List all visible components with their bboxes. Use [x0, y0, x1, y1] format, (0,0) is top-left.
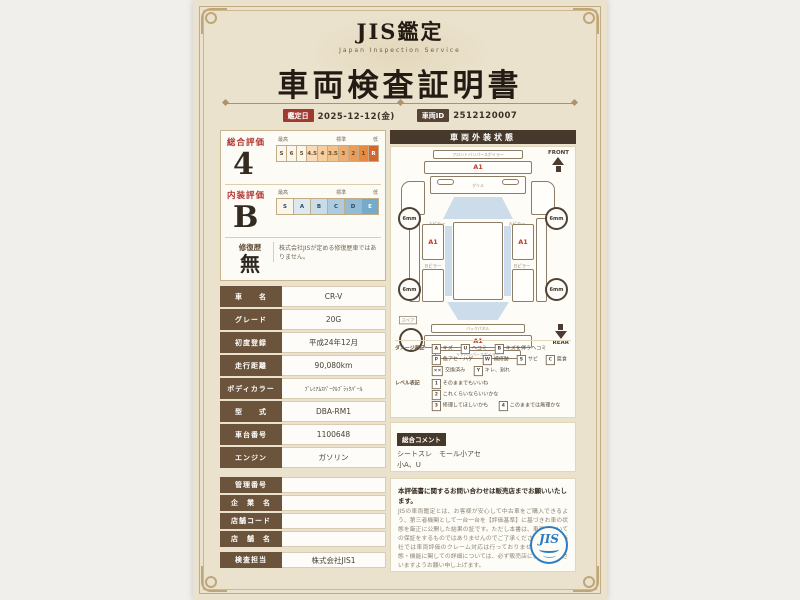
front-arrow: FRONT — [548, 150, 569, 172]
vehicle-id: 車両ID 2512120007 — [417, 109, 518, 122]
table-row: ボディカラーﾌﾟﾚﾐｱﾑｽﾊﾟｰｸﾙﾌﾞﾗｯｸﾊﾟｰﾙ — [220, 378, 386, 399]
date-label-chip: 鑑定日 — [283, 109, 314, 122]
corner-ornament — [573, 566, 599, 592]
left-door-glass — [445, 226, 452, 296]
left-front-door: A1 — [422, 224, 444, 260]
spare-tire-label: スペア — [399, 316, 417, 324]
left-rear-wheel: 6mm — [398, 278, 421, 301]
right-door-glass — [504, 226, 511, 296]
meta-badges: 鑑定日 2025-12-12(金) 車両ID 2512120007 — [193, 109, 607, 122]
scale-cell: B — [310, 198, 328, 215]
right-rear-wheel: 6mm — [545, 278, 568, 301]
damage-legend-label: ダメージ表記 — [395, 344, 426, 374]
right-front-wheel: 6mm — [545, 207, 568, 230]
overall-comment-card: 総合コメント シートスレ モール小アセ 小A、U — [390, 422, 576, 472]
damage-mark: A1 — [473, 164, 483, 171]
table-row: 走行距離90,080km — [220, 355, 386, 376]
exterior-panel-title: 車両外装状態 — [390, 130, 576, 144]
certificate: JIS鑑定 Japan Inspection Service 車両検査証明書 鑑… — [193, 0, 607, 600]
right-front-door: A1 — [512, 224, 534, 260]
roof — [453, 222, 503, 300]
scale-cell: D — [344, 198, 362, 215]
car-diagram: FRONT REAR フロントバンパースポイラー A1 グリル Aピラー Aピラ… — [397, 150, 569, 362]
interior-rating: 内装評価 B 最高 標準 低 S A B C D E — [227, 189, 379, 233]
dealer-info-table: 管理番号 企 業 名 店舗コード 店 舗 名 検査担当株式会社JIS1 — [220, 477, 386, 570]
table-row: 車 名CR-V — [220, 286, 386, 307]
brand-logo: JIS鑑定 — [193, 16, 607, 46]
repair-history-note: 株式会社JISが定める修復歴車ではありません。 — [273, 242, 379, 262]
marker-std: 標準 — [336, 189, 346, 196]
certificate-header: JIS鑑定 Japan Inspection Service 車両検査証明書 — [193, 16, 607, 105]
brand-subtitle: Japan Inspection Service — [193, 47, 607, 54]
interior-rating-value: B — [233, 203, 277, 233]
table-row: 企 業 名 — [220, 495, 386, 511]
right-headlight — [502, 179, 519, 185]
front-bumper: A1 — [424, 161, 532, 174]
back-panel: バックパネル — [431, 324, 525, 333]
interior-rating-scale: S A B C D E — [277, 198, 379, 215]
rear-window — [447, 302, 509, 320]
overall-rating-value: 4 — [233, 150, 277, 180]
damage-mark: A1 — [518, 239, 528, 246]
marker-std: 標準 — [336, 136, 346, 143]
left-headlight — [437, 179, 454, 185]
overall-rating-scale: S 6 5 4.5 4 3.5 3 2 1 R — [277, 145, 379, 162]
notice-title: 本評価書に関するお問い合わせは販売店までお願いいたします。 — [398, 485, 568, 505]
table-row: 車台番号1100648 — [220, 424, 386, 445]
marker-high: 最高 — [278, 189, 288, 196]
marker-low: 低 — [373, 189, 378, 196]
ratings-card: 総合評価 4 最高 標準 低 S 6 5 4.5 4 3.5 3 2 — [220, 130, 386, 281]
damage-mark: A1 — [428, 239, 438, 246]
table-row: 店舗コード — [220, 513, 386, 529]
notice-card: 本評価書に関するお問い合わせは販売店までお願いいたします。 JISの車両鑑定とは… — [390, 478, 576, 572]
right-rear-door — [512, 269, 534, 302]
front-spoiler: フロントバンパースポイラー — [433, 150, 523, 159]
table-row: グレード20G — [220, 309, 386, 330]
left-b-pillar-label: Bピラー — [425, 262, 442, 269]
vehicle-info-table: 車 名CR-V グレード20G 初度登録平成24年12月 走行距離90,080k… — [220, 286, 386, 470]
table-row: 型 式DBA-RM1 — [220, 401, 386, 422]
table-row: 管理番号 — [220, 477, 386, 493]
id-label-chip: 車両ID — [417, 109, 449, 122]
left-front-wheel: 6mm — [398, 207, 421, 230]
marker-high: 最高 — [278, 136, 288, 143]
scale-cell: S — [276, 198, 294, 215]
table-row: エンジンガソリン — [220, 447, 386, 468]
damage-legend-items: Aキズ Uヘコミ Bキズを伴うヘコミ P色アセ・ハゲ W補修跡 Sサビ C腐食 … — [429, 344, 571, 377]
date-value: 2025-12-12(金) — [318, 110, 395, 122]
comment-badge: 総合コメント — [397, 433, 446, 446]
marker-low: 低 — [373, 136, 378, 143]
level-legend-items: 1そのままでもいいね 2これくらいならいいかな 3修理してほしいかも 4このまま… — [429, 379, 571, 412]
scale-cell: R — [368, 145, 379, 162]
id-value: 2512120007 — [453, 111, 517, 121]
table-row: 店 舗 名 — [220, 531, 386, 547]
scale-cell: A — [293, 198, 311, 215]
comment-text: シートスレ モール小アセ 小A、U — [397, 449, 569, 470]
repair-history: 修復歴 無 株式会社JISが定める修復歴車ではありません。 — [227, 242, 379, 275]
overall-rating: 総合評価 4 最高 標準 低 S 6 5 4.5 4 3.5 3 2 — [227, 136, 379, 180]
left-rear-door — [422, 269, 444, 302]
exterior-diagram-card: FRONT REAR フロントバンパースポイラー A1 グリル Aピラー Aピラ… — [390, 146, 576, 418]
diagram-legend: ダメージ表記 Aキズ Uヘコミ Bキズを伴うヘコミ P色アセ・ハゲ W補修跡 S… — [395, 340, 571, 414]
repair-history-value: 無 — [227, 253, 273, 275]
windshield — [443, 197, 513, 219]
right-b-pillar-label: Bピラー — [514, 262, 531, 269]
table-row: 初度登録平成24年12月 — [220, 332, 386, 353]
jis-logo: JIS — [530, 526, 568, 564]
level-legend-label: レベル表記 — [395, 379, 426, 409]
inspection-date: 鑑定日 2025-12-12(金) — [283, 109, 395, 122]
table-row: 検査担当株式会社JIS1 — [220, 552, 386, 568]
scale-cell: E — [361, 198, 379, 215]
scale-cell: C — [327, 198, 345, 215]
